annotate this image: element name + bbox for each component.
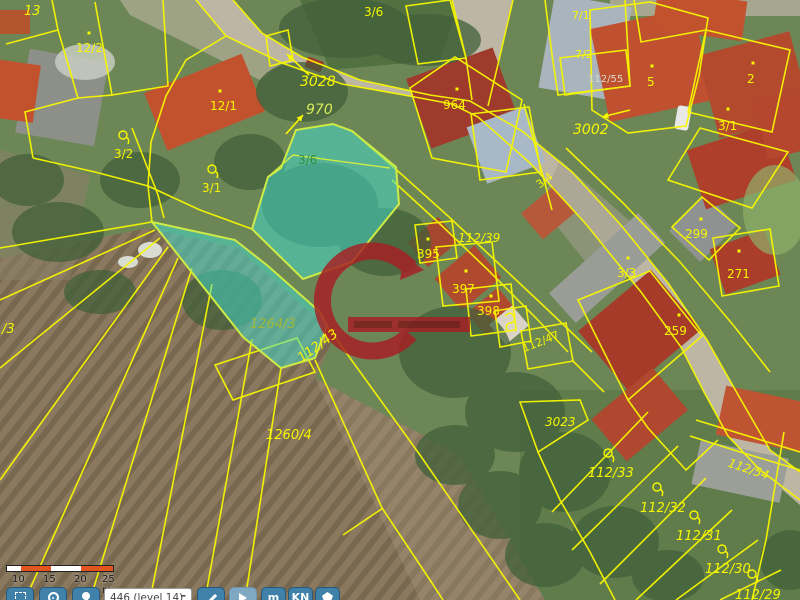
parcel-label: 3/2 xyxy=(114,147,133,161)
parcel-centroid-dot xyxy=(752,62,755,65)
target-icon xyxy=(48,592,59,600)
parcel-label: 112/33 xyxy=(588,466,634,481)
parcel-label: 397 xyxy=(452,282,475,296)
parcel-centroid-dot xyxy=(490,295,493,298)
pin-icon xyxy=(82,592,90,600)
parcel-label: 112/39 xyxy=(458,231,500,245)
parcel-label: 1264/3 xyxy=(250,317,296,332)
dashed-square-icon xyxy=(15,592,26,600)
parcel-centroid-dot xyxy=(219,90,222,93)
parcel-label: 1260/4 xyxy=(266,428,312,443)
zoom-level-dropdown[interactable]: 446 (level 14) – xyxy=(104,588,192,600)
parcel-label: 3028 xyxy=(300,74,336,90)
parcel-label: 112/29 xyxy=(735,588,781,600)
parcel-label: 3002 xyxy=(573,122,609,138)
scalebar-segment xyxy=(51,566,81,571)
polygon-select-button[interactable] xyxy=(315,587,340,600)
parcel-label: 12/2 xyxy=(76,41,103,55)
parcel-centroid-dot xyxy=(738,250,741,253)
parcel-centroid-dot xyxy=(465,270,468,273)
scalebar-tick: 15 xyxy=(43,574,56,585)
parcel-centroid-dot xyxy=(678,314,681,317)
parcel-label: 3023 xyxy=(545,415,576,429)
scalebar-segment xyxy=(7,566,21,571)
dropdown-dash-icon: – xyxy=(181,590,186,600)
parcel-centroid-dot xyxy=(651,65,654,68)
parcel-label: 964 xyxy=(443,98,466,112)
arrow-right-icon xyxy=(239,593,247,600)
parcel-label: 112/30 xyxy=(705,562,751,577)
parcel-label: 3/6 xyxy=(298,153,317,167)
measure-button[interactable] xyxy=(197,587,225,600)
parcel-label: 112/32 xyxy=(640,501,686,516)
parcel-label: 2 xyxy=(747,72,755,86)
parcel-label: 7/1 xyxy=(572,9,590,22)
kn-label: KN xyxy=(292,592,310,600)
parcel-label: 3/6 xyxy=(364,5,383,19)
parcel-label: 299 xyxy=(685,227,708,241)
parcel-label: 395 xyxy=(417,247,440,261)
parcel-centroid-dot xyxy=(427,238,430,241)
parcel-centroid-dot xyxy=(456,88,459,91)
parcel-centroid-dot xyxy=(627,257,630,260)
scalebar-segment xyxy=(21,566,51,571)
parcel-label: 970 xyxy=(306,102,333,118)
parcel-centroid-dot xyxy=(88,32,91,35)
home-extent-button[interactable] xyxy=(39,587,67,600)
scalebar-tick: 20 xyxy=(74,574,87,585)
parcel-label: 3/1 xyxy=(718,119,737,133)
measure-distance-button[interactable]: m xyxy=(261,587,286,600)
parcel-label: 12/1 xyxy=(210,99,237,113)
locate-button[interactable] xyxy=(72,587,100,600)
parcel-label: 3/1 xyxy=(202,181,221,195)
parcel-centroid-dot xyxy=(700,218,703,221)
parcel-label: 112/55 xyxy=(588,74,623,85)
cadastre-kn-button[interactable]: KN xyxy=(288,587,313,600)
parcel-label: 112/31 xyxy=(676,529,722,544)
parcel-label: 259 xyxy=(664,324,687,338)
parcel-label: 3/3 xyxy=(617,266,636,280)
pencil-icon xyxy=(205,594,216,600)
map-scalebar: 10 15 20 25 m xyxy=(6,565,126,589)
parcel-label: 5 xyxy=(647,75,655,89)
scalebar-tick: 10 xyxy=(12,574,25,585)
scalebar-segment xyxy=(81,566,113,571)
parcel-label: /3 xyxy=(1,322,15,337)
parcel-label: 271 xyxy=(727,267,750,281)
polygon-icon xyxy=(322,592,333,600)
map-canvas[interactable]: 1312/212/13/23/13/630289703/69647/17/211… xyxy=(0,0,800,600)
meters-label: m xyxy=(268,592,279,600)
parcel-label: 13 xyxy=(24,4,41,19)
zoom-level-label: 446 (level 14) xyxy=(110,592,183,600)
map-viewer: 1312/212/13/23/13/630289703/69647/17/211… xyxy=(0,0,800,600)
scalebar-bar xyxy=(6,565,114,572)
parcel-label: 398 xyxy=(477,304,500,318)
parcel-label: 7/2 xyxy=(575,48,593,61)
forward-button[interactable] xyxy=(229,587,257,600)
select-area-button[interactable] xyxy=(6,587,34,600)
parcel-centroid-dot xyxy=(727,108,730,111)
